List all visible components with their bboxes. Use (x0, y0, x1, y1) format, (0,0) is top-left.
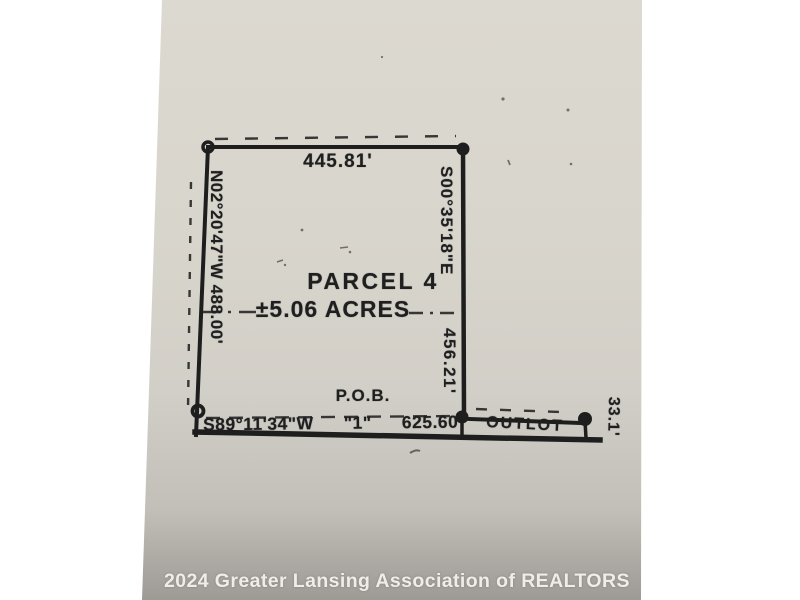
realtor-watermark: 2024 Greater Lansing Association of REAL… (164, 570, 630, 593)
south-boundary-label: S89°11'34"W "1" 625.60' (203, 412, 463, 436)
parcel-name-label: PARCEL 4 (275, 268, 471, 295)
west-dashed-line (188, 182, 191, 410)
north-dashed-line (215, 136, 456, 139)
outlot-dashed-line (476, 409, 560, 412)
outlot-depth-label: 33.1' (603, 397, 622, 437)
survey-photo: 445.81' N02°20'47"W 488.00' S00°35'18"E … (142, 0, 642, 600)
page: 445.81' N02°20'47"W 488.00' S00°35'18"E … (0, 0, 800, 600)
north-boundary-label: 445.81' (290, 151, 386, 173)
south-length-text: 625.60' (402, 412, 463, 434)
point-of-beginning-label: P.O.B. (323, 386, 403, 406)
south-marker-text: "1" (344, 413, 372, 434)
outlot-corner-marker (578, 412, 592, 426)
ne-corner-marker (457, 143, 470, 156)
south-bearing-text: S89°11'34"W (203, 413, 314, 435)
east-boundary-bearing-label: S00°35'18"E (436, 166, 456, 275)
scan-noise (277, 56, 572, 453)
parcel-area-label: ±5.06 ACRES (235, 296, 431, 323)
east-boundary-length-label: 456.21' (439, 328, 459, 395)
west-boundary-label: N02°20'47"W 488.00' (206, 170, 226, 344)
